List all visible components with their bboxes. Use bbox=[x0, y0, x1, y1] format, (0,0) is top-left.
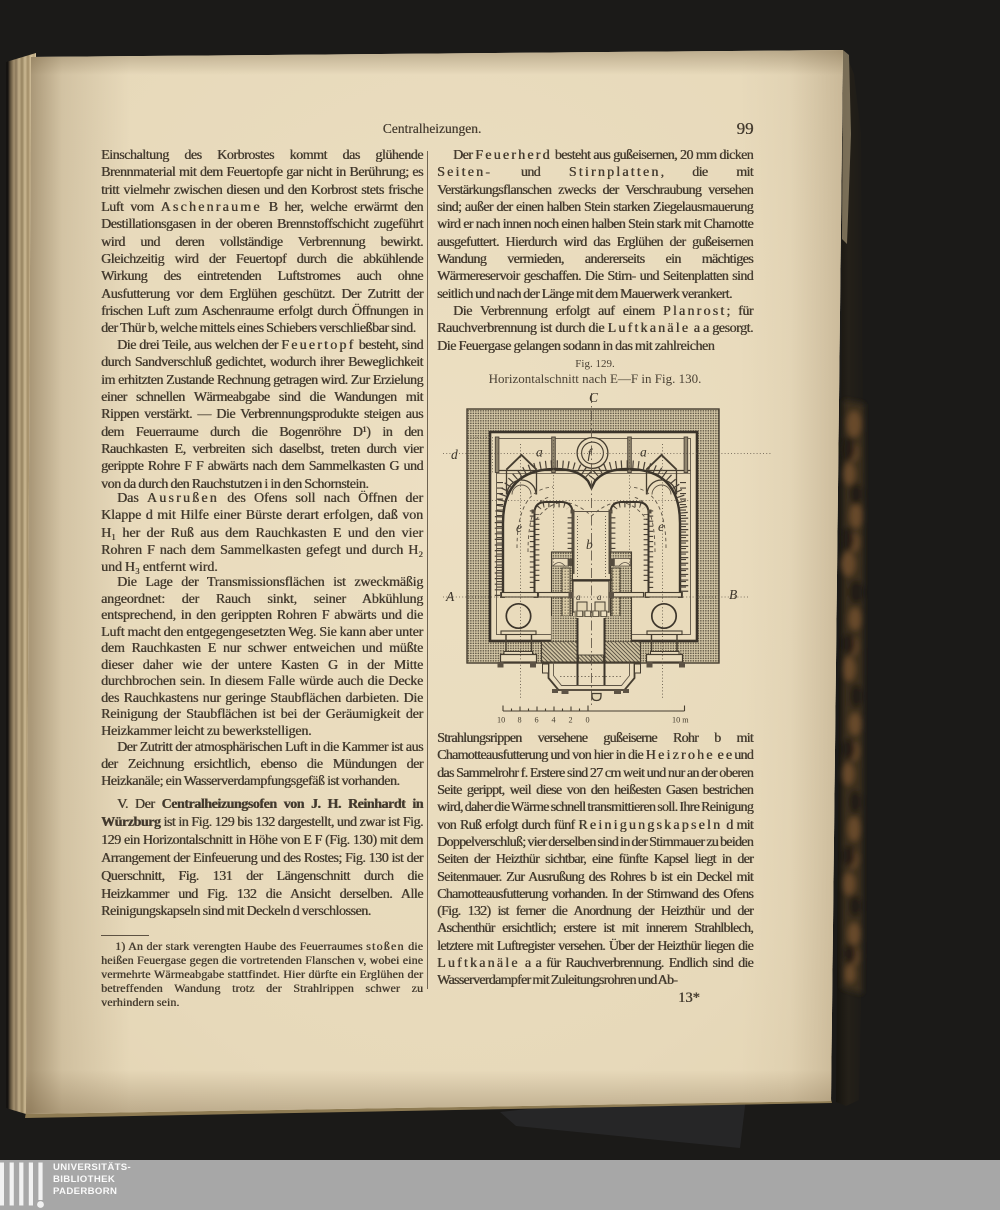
svg-text:B: B bbox=[729, 587, 737, 602]
svg-text:4: 4 bbox=[552, 716, 556, 725]
svg-text:C: C bbox=[589, 390, 599, 405]
svg-text:b: b bbox=[586, 537, 593, 552]
svg-text:6: 6 bbox=[535, 716, 539, 725]
svg-text:10: 10 bbox=[497, 716, 505, 725]
svg-text:a: a bbox=[536, 445, 543, 460]
svg-text:e: e bbox=[658, 519, 664, 534]
svg-text:10 m: 10 m bbox=[672, 716, 689, 725]
svg-text:A: A bbox=[445, 589, 455, 604]
svg-text:0: 0 bbox=[586, 716, 590, 725]
svg-text:d: d bbox=[451, 447, 458, 462]
svg-text:a: a bbox=[597, 592, 602, 602]
svg-text:a: a bbox=[640, 445, 647, 460]
svg-text:2: 2 bbox=[569, 716, 573, 725]
svg-text:e: e bbox=[516, 520, 522, 535]
svg-text:a: a bbox=[576, 592, 581, 602]
svg-text:8: 8 bbox=[518, 716, 522, 725]
